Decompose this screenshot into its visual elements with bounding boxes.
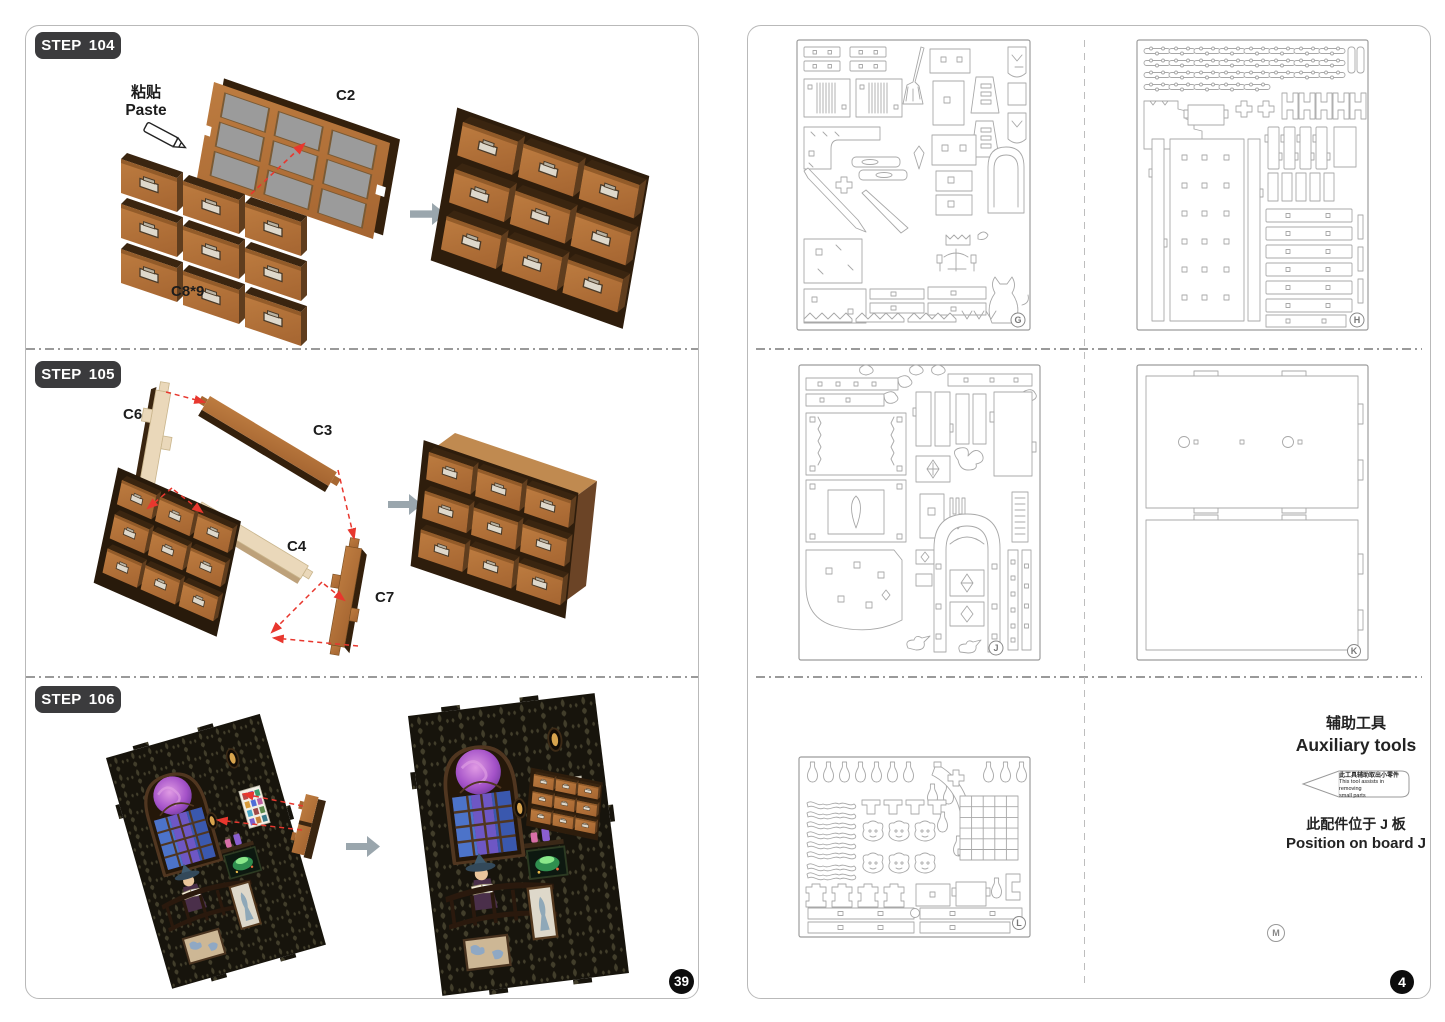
paste-label-zh: 粘贴 <box>119 81 173 102</box>
board-letter-g: G <box>1011 313 1025 327</box>
step-105-result <box>411 433 597 619</box>
quatrefoil-part <box>950 602 984 626</box>
quatrefoil-part <box>916 456 950 482</box>
part-label-c3: C3 <box>313 422 332 439</box>
paste-label-en: Paste <box>119 102 173 120</box>
step-106-badge: STEP 106 <box>35 686 121 713</box>
column-divider <box>1084 40 1085 984</box>
svg-text:L: L <box>1016 918 1022 928</box>
board-letter-j: J <box>989 641 1003 655</box>
section-divider <box>756 348 1422 350</box>
wizard-wall-result <box>403 688 634 998</box>
removal-tool-diagram: 此工具辅助取出小零件 This tool assists in removing… <box>1299 764 1413 804</box>
board-letter-k: K <box>1348 645 1361 658</box>
board-position-zh: 此配件位于 J 板 <box>1286 814 1426 834</box>
paste-instruction: 粘贴 Paste <box>119 81 173 120</box>
part-c3 <box>192 392 343 495</box>
part-label-c6: C6 <box>123 406 142 423</box>
part-label-c7: C7 <box>375 589 394 606</box>
arch-part <box>988 147 1024 213</box>
board-position-en: Position on board J <box>1286 835 1426 852</box>
svg-text:H: H <box>1354 315 1361 325</box>
part-label-c2: C2 <box>336 87 355 104</box>
parts-board-g: G <box>796 39 1031 331</box>
shelf-strip-part <box>287 793 326 859</box>
parts-board-j: J <box>798 364 1041 661</box>
step-104-illustration <box>26 26 698 348</box>
part-c7 <box>319 536 371 658</box>
board-letter-l: L <box>1013 917 1026 930</box>
part-label-c4: C4 <box>287 538 306 555</box>
step-105-badge: STEP 105 <box>35 361 121 388</box>
paste-pen-icon <box>143 122 187 152</box>
auxiliary-tools-block: 辅助工具 Auxiliary tools 此工具辅助取出小零件 This too… <box>1286 712 1426 852</box>
quatrefoil-part <box>950 570 984 596</box>
parts-board-h: H <box>1136 39 1369 331</box>
part-label-c8: C8*9 <box>171 283 204 300</box>
svg-text:K: K <box>1351 646 1358 656</box>
step-104-result <box>431 107 650 328</box>
page-number-right: 4 <box>1390 970 1414 994</box>
drawer-block <box>94 467 241 636</box>
step-105-illustration <box>26 348 698 676</box>
tool-note-en: This tool assists in removing small part… <box>1339 779 1407 800</box>
page-number-left: 39 <box>669 969 694 994</box>
step-106-illustration <box>26 676 698 998</box>
manual-page-right: G <box>747 25 1431 999</box>
parts-board-l: L <box>798 756 1031 938</box>
auxiliary-title-zh: 辅助工具 <box>1286 712 1426 733</box>
manual-page-left: STEP 104 STEP 105 STEP 106 粘贴 Paste C2 C… <box>25 25 699 999</box>
section-divider <box>756 676 1422 678</box>
step-104-badge: STEP 104 <box>35 32 121 59</box>
auxiliary-title-en: Auxiliary tools <box>1286 735 1426 756</box>
parts-board-k: K <box>1136 364 1369 661</box>
tool-note-zh: 此工具辅助取出小零件 <box>1339 770 1399 779</box>
svg-text:G: G <box>1014 315 1021 325</box>
svg-text:J: J <box>993 643 998 653</box>
step-arrow-icon <box>346 836 380 857</box>
board-letter-h: H <box>1350 313 1364 327</box>
board-letter-m: M <box>1267 924 1285 942</box>
